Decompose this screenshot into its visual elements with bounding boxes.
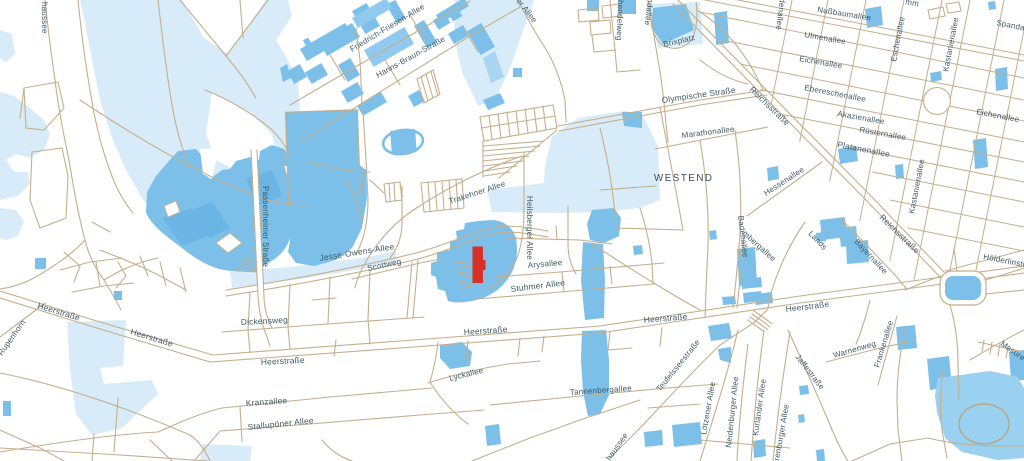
- svg-text:Heilsberger Allee: Heilsberger Allee: [525, 196, 534, 260]
- svg-text:haussee: haussee: [40, 2, 49, 34]
- svg-text:Passenheimer Straße: Passenheimer Straße: [261, 186, 270, 268]
- svg-text:hendelweg: hendelweg: [615, 0, 625, 41]
- svg-text:WESTEND: WESTEND: [654, 173, 714, 184]
